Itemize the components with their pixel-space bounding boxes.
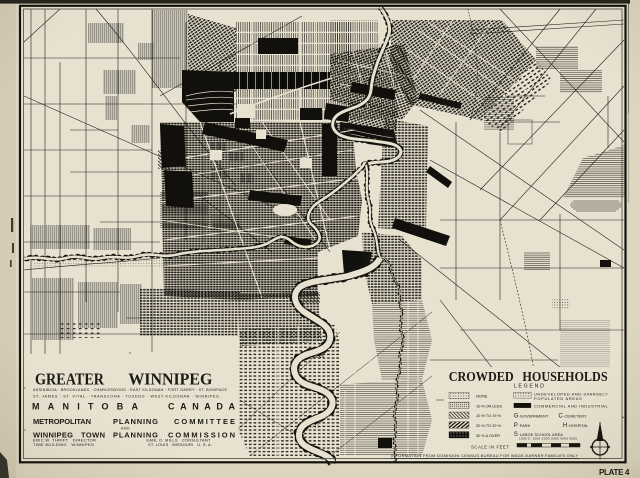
svg-text:PLATE 4: PLATE 4 [599, 468, 630, 477]
